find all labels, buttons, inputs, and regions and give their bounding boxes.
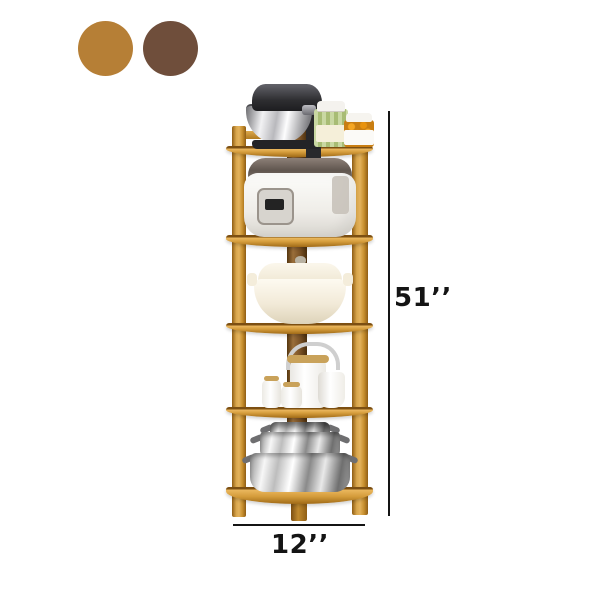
milk-jug [262, 380, 281, 408]
glass-jar-pickles [314, 101, 348, 147]
jar-preserves [344, 113, 374, 147]
height-dimension-line [388, 111, 390, 516]
product-image: 51’’ 12’’ [0, 0, 600, 600]
ceramic-casserole [250, 256, 350, 325]
jar-label [316, 125, 346, 142]
bamboo-cap [283, 382, 300, 387]
tea-set [258, 342, 352, 408]
bamboo-cap [264, 376, 279, 381]
teapot-bamboo-lid [287, 355, 329, 363]
jar-lid [317, 101, 345, 112]
cup [318, 372, 345, 408]
casserole-pot [254, 279, 346, 324]
height-dimension-label: 51’’ [394, 283, 452, 313]
stainless-pot-stack [248, 422, 352, 490]
casserole-handle-left [247, 273, 257, 286]
cooker-control-panel [257, 188, 294, 225]
cooker-display [265, 199, 284, 210]
sugar-jar [281, 386, 302, 408]
stock-pot-large [250, 453, 350, 492]
cooker-water-tank [332, 176, 349, 214]
jar-label [344, 130, 374, 145]
width-dimension-line [233, 524, 365, 526]
width-dimension-label: 12’’ [264, 530, 336, 560]
casserole-handle-right [343, 273, 353, 286]
shelf-board-4 [226, 407, 373, 418]
color-swatch-walnut-brown[interactable] [143, 21, 198, 76]
jar-lid [346, 113, 372, 122]
rice-cooker [244, 158, 356, 237]
mixer-base [252, 140, 322, 149]
color-swatch-natural-wood[interactable] [78, 21, 133, 76]
mixer-head [252, 84, 322, 111]
